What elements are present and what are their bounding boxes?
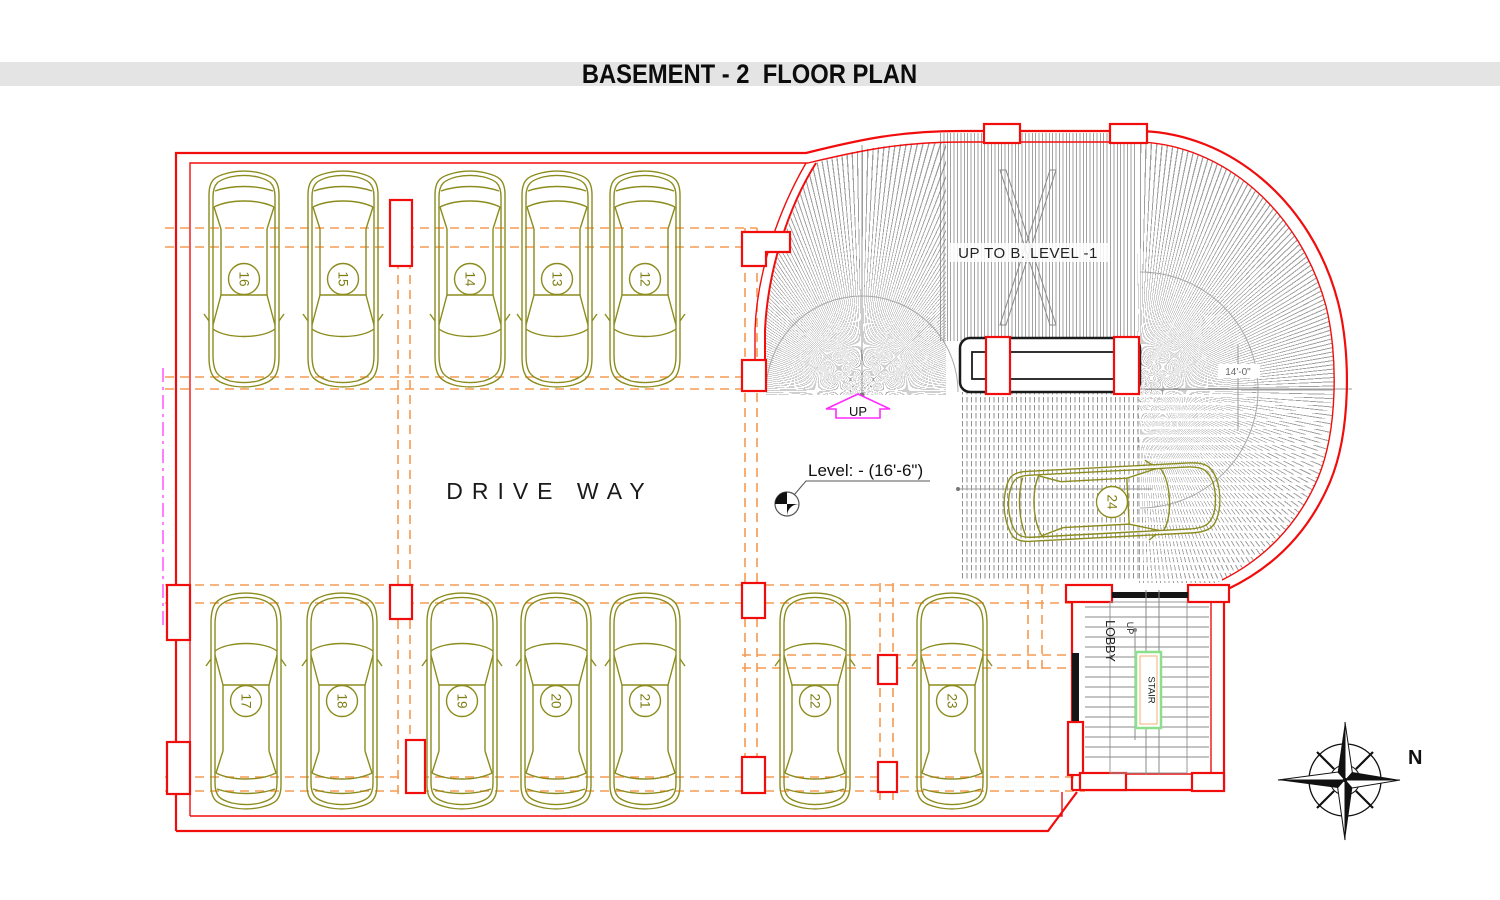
ramp-width-dimension: 14'-0" (1225, 367, 1251, 378)
column (1066, 585, 1112, 602)
compass-rose: N (1278, 722, 1422, 840)
column (1114, 337, 1139, 394)
ramp-direction-label: UP TO B. LEVEL -1 (958, 245, 1098, 262)
car-15: 15 (303, 171, 383, 387)
column (390, 200, 412, 266)
stair-up-label: UP (1125, 622, 1135, 635)
car-number: 18 (334, 693, 349, 708)
column (742, 360, 766, 391)
car-13: 13 (517, 171, 597, 387)
stair-label: STAIR (1146, 676, 1157, 703)
column (878, 762, 897, 792)
column (742, 583, 765, 618)
car-14: 14 (430, 171, 510, 387)
column (390, 585, 412, 619)
column (742, 232, 790, 266)
car-number: 20 (548, 693, 563, 708)
ramp-up-arrow-label: UP (849, 404, 867, 419)
car-number: 23 (944, 693, 959, 708)
column (1110, 124, 1147, 143)
floor-plan-canvas: BASEMENT - 2 FLOOR PLAN (0, 0, 1500, 900)
parked-cars: 16 15 14 13 12 17 18 19 20 21 22 23 24 (204, 171, 1222, 809)
column (878, 655, 897, 684)
column (1080, 773, 1126, 790)
car-number: 24 (1104, 494, 1119, 510)
car-24: 24 (1002, 456, 1222, 547)
column (406, 740, 425, 793)
car-18: 18 (302, 593, 382, 809)
column (167, 585, 190, 640)
columns (167, 124, 1229, 794)
ramp-guides (766, 145, 1352, 508)
car-number: 19 (454, 693, 469, 708)
column (1068, 722, 1083, 775)
column (1188, 585, 1229, 602)
car-number: 14 (462, 271, 477, 287)
car-number: 21 (637, 693, 652, 708)
car-number: 22 (807, 693, 822, 708)
car-number: 16 (236, 271, 251, 286)
level-marker: Level: - (16'-6") (775, 461, 930, 516)
car-number: 13 (549, 271, 564, 286)
car-number: 17 (238, 693, 253, 708)
wall (1072, 653, 1079, 721)
column (167, 742, 190, 794)
north-label: N (1408, 747, 1422, 769)
stair-block: STAIR LOBBY UP (1072, 590, 1209, 775)
car-12: 12 (605, 171, 685, 387)
level-note: Level: - (16'-6") (808, 461, 923, 480)
ramp-up-arrow: UP (826, 394, 890, 419)
column (742, 757, 765, 793)
column (986, 337, 1010, 394)
car-number: 12 (637, 271, 652, 286)
car-19: 19 (422, 593, 502, 809)
wall (1112, 592, 1188, 598)
car-number: 15 (335, 271, 350, 286)
column (984, 124, 1020, 143)
car-16: 16 (204, 171, 284, 387)
floor-plan-drawing: STAIR LOBBY UP 16 15 14 13 12 17 18 19 2… (0, 0, 1500, 900)
bay-centerline-dot (956, 487, 960, 491)
column (1192, 773, 1224, 791)
lobby-label: LOBBY (1103, 620, 1117, 662)
drive-way-label: DRIVE WAY (446, 478, 654, 504)
